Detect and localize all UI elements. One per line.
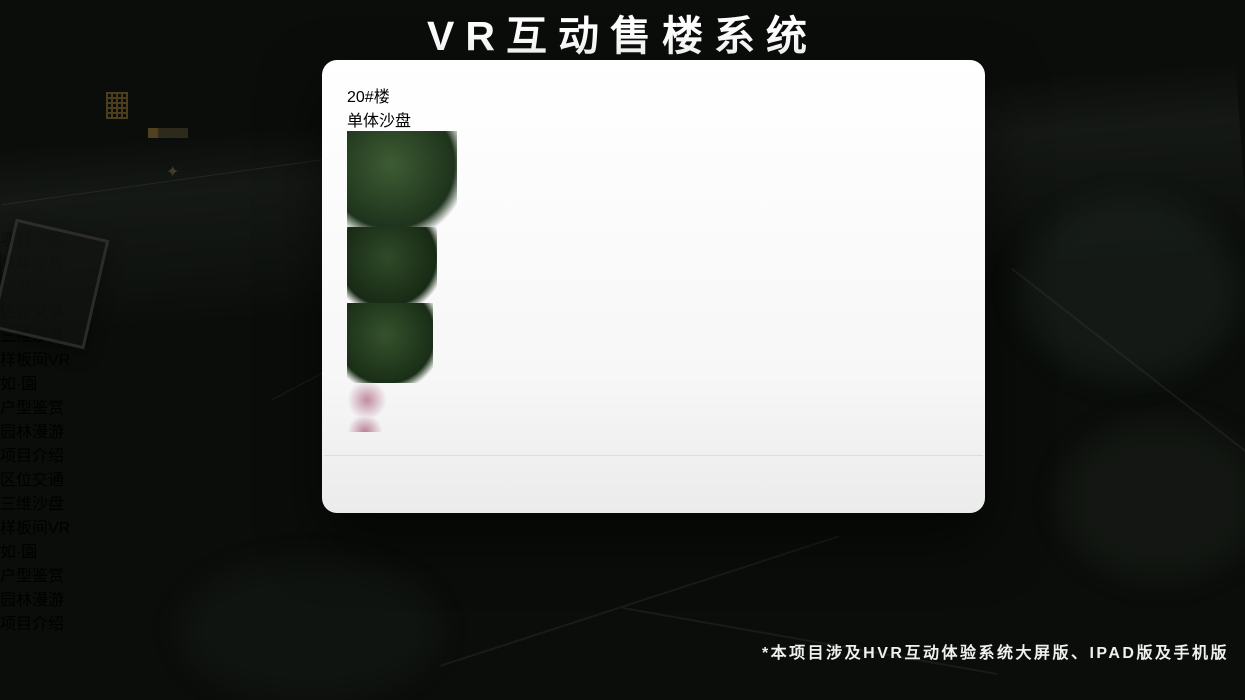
tree-blob	[347, 303, 433, 383]
blossom-blob	[347, 383, 387, 417]
nav-item-floorplans[interactable]: 户型鉴赏	[0, 562, 1245, 586]
map-terrain-blob	[1020, 200, 1240, 380]
monitor-chin-line	[324, 455, 983, 456]
cloud-blob	[0, 96, 70, 156]
monitor-screen: 20#楼 单体沙盘 3#楼 6#楼 8#楼 20#楼 项目	[347, 83, 960, 432]
blossom-blob	[347, 417, 383, 432]
map-qr-block	[106, 92, 128, 119]
compass-icon: ✦	[166, 162, 179, 182]
tree-blob	[347, 227, 437, 303]
map-terrain-blob	[180, 560, 440, 700]
map-terrain-blob	[1060, 420, 1245, 580]
brand-logo-text: 如·園	[0, 538, 1245, 562]
cloud-blob	[0, 156, 110, 226]
building-number: 20	[347, 89, 365, 106]
building-heading: 20#楼	[347, 83, 960, 107]
tree-blob	[347, 131, 457, 227]
desktop-monitor: 20#楼 单体沙盘 3#楼 6#楼 8#楼 20#楼 项目	[322, 60, 985, 513]
building-render	[347, 131, 960, 432]
brand-logo[interactable]: 如·園	[0, 538, 1245, 562]
building-unit: #楼	[365, 89, 390, 106]
building-subtitle: 单体沙盘	[347, 107, 960, 131]
map-brand-mark	[148, 128, 188, 138]
nav-item-showroom-vr[interactable]: 样板间VR	[0, 514, 1245, 538]
footnote: *本项目涉及HVR互动体验系统大屏版、IPAD版及手机版	[762, 639, 1229, 663]
